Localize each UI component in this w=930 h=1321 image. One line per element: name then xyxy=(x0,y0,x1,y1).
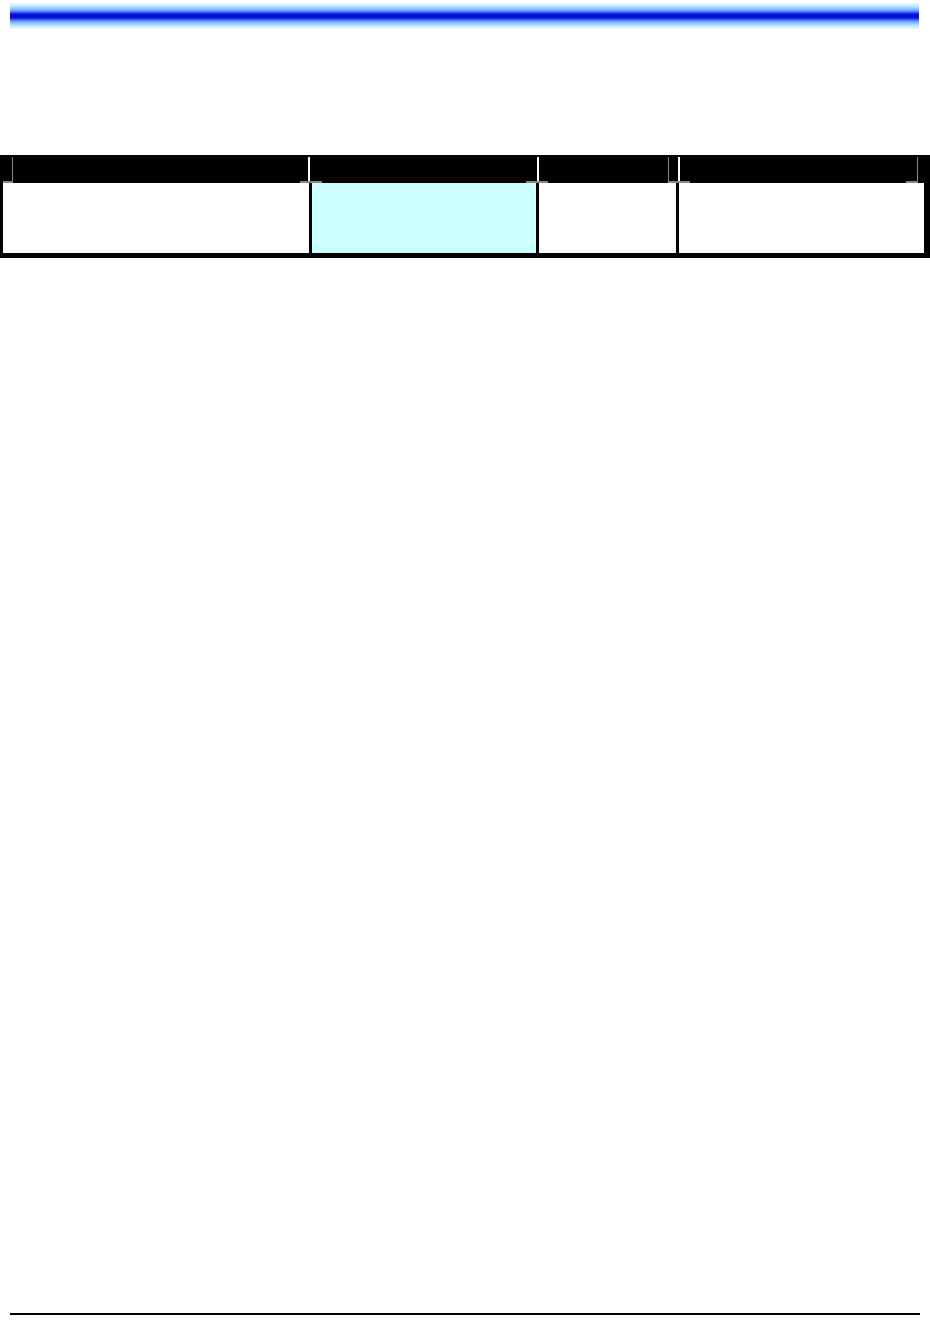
table-body-row xyxy=(0,183,930,258)
table-cell-highlighted xyxy=(312,183,536,253)
header-corner-mark xyxy=(3,181,13,183)
table-header-row xyxy=(0,155,930,183)
header-separator-tick xyxy=(537,157,539,181)
header-corner-mark xyxy=(300,181,322,183)
document-page xyxy=(0,0,930,1321)
table-cell xyxy=(679,183,924,253)
header-separator-tick xyxy=(668,157,669,181)
header-corner-mark xyxy=(906,181,918,183)
header-separator-tick xyxy=(308,157,310,181)
data-table xyxy=(0,155,930,258)
header-corner-mark xyxy=(668,181,690,183)
top-gradient-bar xyxy=(10,2,919,30)
table-cell xyxy=(539,183,676,253)
footer-rule xyxy=(10,1313,920,1315)
header-separator-tick xyxy=(12,157,13,181)
header-separator-tick xyxy=(678,157,680,181)
table-cell xyxy=(3,183,309,253)
header-corner-mark xyxy=(526,181,548,183)
header-separator-tick xyxy=(917,157,918,181)
